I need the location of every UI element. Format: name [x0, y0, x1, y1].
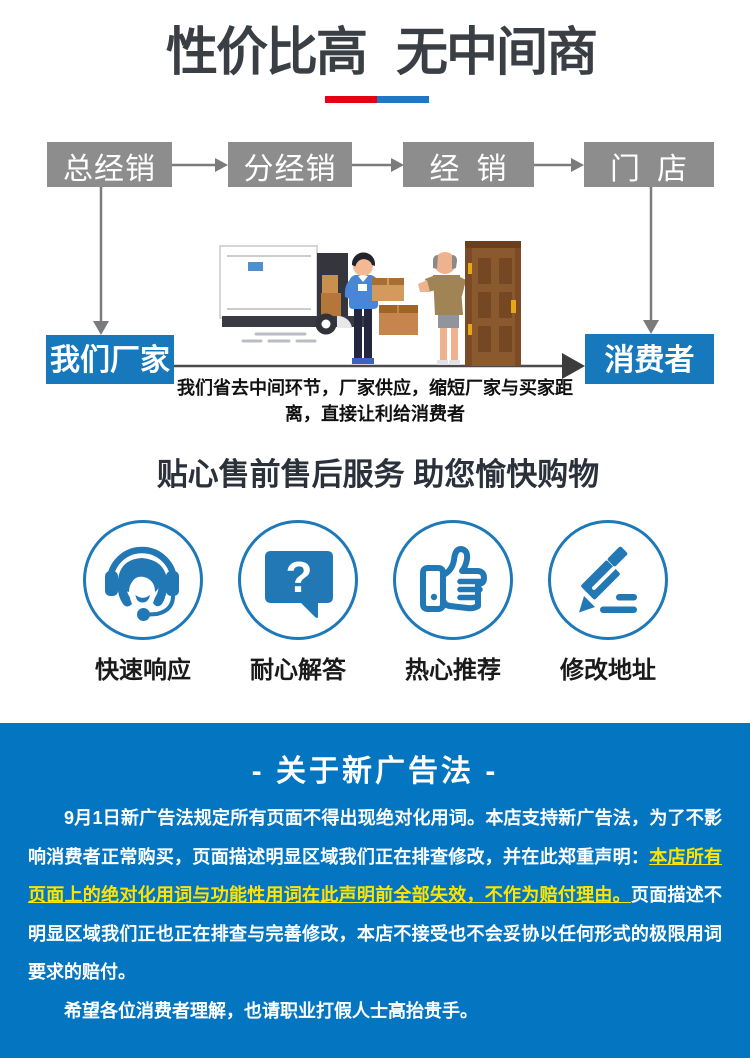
svg-text:?: ? — [286, 553, 313, 602]
